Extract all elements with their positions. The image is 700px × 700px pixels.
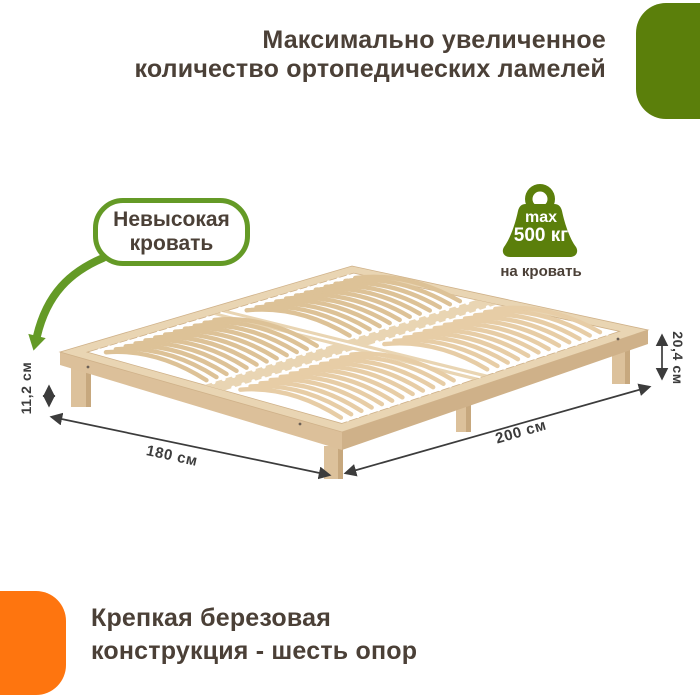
footer-title: Крепкая березовая конструкция - шесть оп…: [91, 602, 417, 668]
callout-line1: Невысокая: [113, 208, 230, 232]
footer-title-line2: конструкция - шесть опор: [91, 635, 417, 668]
callout-arrow-icon: [28, 258, 103, 351]
dimension-left-height-label: 11,2 см: [18, 362, 34, 415]
bed-frame-illustration: [0, 0, 700, 700]
callout-line2: кровать: [130, 232, 214, 256]
product-infographic: Максимально увеличенное количество ортоп…: [0, 0, 700, 700]
low-bed-callout: Невысокая кровать: [93, 198, 250, 266]
dimension-right-height-label: 20,4 см: [670, 331, 686, 384]
max-load-value: 500 кг: [514, 225, 568, 247]
max-load-caption: на кровать: [500, 263, 581, 280]
footer-title-line1: Крепкая березовая: [91, 602, 417, 635]
